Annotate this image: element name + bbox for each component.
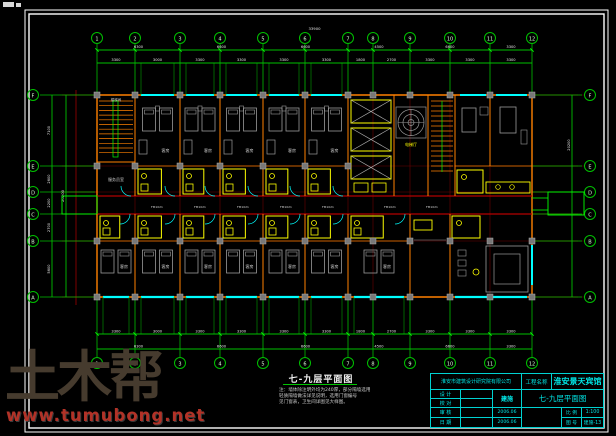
room-label: 客房 xyxy=(383,263,391,269)
pillow xyxy=(271,110,280,114)
axis-number-bottom: 8 xyxy=(371,361,374,367)
room-door-arc xyxy=(290,186,300,196)
tumubong-watermark-logo: 土木帮 xyxy=(5,348,161,406)
pillow xyxy=(331,110,340,114)
room-label: 客房 xyxy=(204,263,212,269)
dim-text-bottom: 3300 xyxy=(111,330,121,334)
column xyxy=(260,163,266,169)
bed xyxy=(500,107,516,133)
sink xyxy=(462,175,467,180)
dim-text-top-major: 6600 xyxy=(301,45,311,49)
dim-text-bottom: 3300 xyxy=(425,330,435,334)
toilet xyxy=(103,228,110,235)
axis-letter-left: C xyxy=(31,212,35,218)
axis-number-top: 11 xyxy=(487,36,493,42)
corridor-door-label: FM1021 xyxy=(426,205,438,209)
axis-letter-right: B xyxy=(588,239,592,245)
axis-number-top: 6 xyxy=(303,36,306,42)
room-door-arc xyxy=(290,214,300,224)
axis-number-top: 12 xyxy=(529,36,535,42)
sink xyxy=(312,221,317,226)
column xyxy=(447,238,453,244)
tv-cabinet xyxy=(267,140,275,154)
sink xyxy=(142,174,147,179)
counter xyxy=(486,182,530,193)
tv-cabinet xyxy=(139,140,147,154)
living-table xyxy=(494,254,520,284)
sink xyxy=(187,221,192,226)
column xyxy=(177,238,183,244)
axis-number-bottom: 3 xyxy=(178,361,181,367)
room-door-arc xyxy=(395,214,405,224)
sink xyxy=(457,221,462,226)
pillow xyxy=(187,252,196,256)
dim-text-top: 2700 xyxy=(387,58,397,62)
column xyxy=(217,92,223,98)
pillow xyxy=(162,110,171,114)
dim-text-overall-top: 33900 xyxy=(308,26,321,31)
column xyxy=(132,163,138,169)
dim-text-top: 3300 xyxy=(506,58,516,62)
toilet xyxy=(141,184,148,191)
nightstand xyxy=(282,106,286,111)
room-label: 客房 xyxy=(288,147,296,153)
stair-label: 楼梯间 xyxy=(111,97,122,102)
sink xyxy=(270,221,275,226)
axis-letter-left: F xyxy=(32,93,35,99)
living-carpet xyxy=(486,246,528,292)
pillow xyxy=(229,252,238,256)
room-door-arc xyxy=(248,214,258,224)
column xyxy=(370,238,376,244)
titleblock-project-name: 淮安景天宾馆 xyxy=(551,373,604,390)
axis-number-bottom: 11 xyxy=(487,361,493,367)
column xyxy=(132,92,138,98)
axis-number-top: 1 xyxy=(95,36,98,42)
corridor-door-label: FM1021 xyxy=(384,205,396,209)
sink xyxy=(142,221,147,226)
corner-artifact xyxy=(16,3,21,7)
column xyxy=(487,294,493,300)
titleblock-no-label: 图 号 xyxy=(561,417,582,428)
axis-letter-right: F xyxy=(589,93,592,99)
pillow xyxy=(314,252,323,256)
column xyxy=(132,238,138,244)
axis-letter-left: E xyxy=(31,164,34,170)
column xyxy=(529,294,535,300)
dim-text-bottom-major: 4500 xyxy=(374,345,384,349)
toilet xyxy=(186,184,193,191)
sink xyxy=(227,221,232,226)
dresser xyxy=(521,130,527,144)
corner-artifact xyxy=(3,2,14,7)
room-door-arc xyxy=(248,186,258,196)
dim-text-top-major: 6600 xyxy=(445,45,455,49)
column xyxy=(260,294,266,300)
sink xyxy=(270,174,275,179)
pillow xyxy=(331,252,340,256)
axis-number-bottom: 5 xyxy=(261,361,264,367)
axis-number-bottom: 12 xyxy=(529,361,535,367)
pillow xyxy=(145,110,154,114)
dim-text-left: 5600 xyxy=(47,264,51,274)
room-door-arc xyxy=(120,214,130,224)
room-label: 客房 xyxy=(288,263,296,269)
dim-text-top: 3300 xyxy=(425,58,435,62)
room-label: 客房 xyxy=(162,147,170,153)
title-block: 淮安市建筑设计研究院有限公司 工程名称 淮安景天宾馆 设 计 校 对 审 核 日… xyxy=(430,373,604,428)
column xyxy=(177,294,183,300)
room-label: 客房 xyxy=(246,263,254,269)
tv-cabinet xyxy=(309,140,317,154)
room-door-arc xyxy=(165,186,175,196)
column xyxy=(529,238,535,244)
dim-text-left: 2700 xyxy=(47,222,51,232)
axis-letter-right: C xyxy=(588,212,592,218)
titleblock-row-label-4: 日 期 xyxy=(430,417,461,428)
sink xyxy=(510,185,515,190)
sink xyxy=(187,174,192,179)
column xyxy=(345,163,351,169)
dim-text-bottom: 3300 xyxy=(322,330,332,334)
pillow xyxy=(366,252,375,256)
axis-number-bottom: 6 xyxy=(303,361,306,367)
dim-text-bottom-major: 6600 xyxy=(445,345,455,349)
column xyxy=(177,163,183,169)
sink xyxy=(104,221,109,226)
pillow xyxy=(204,252,213,256)
lobby-label: 电梯厅 xyxy=(405,141,417,147)
corridor-door-label: FM1021 xyxy=(322,205,334,209)
axis-letter-left: B xyxy=(31,239,35,245)
sink xyxy=(227,174,232,179)
column xyxy=(407,238,413,244)
toilet xyxy=(311,228,318,235)
dim-text-bottom: 3300 xyxy=(506,330,516,334)
dim-text-top: 3300 xyxy=(279,58,289,62)
dim-text-bottom: 3300 xyxy=(465,330,475,334)
room-label: 客房 xyxy=(246,147,254,153)
axis-number-bottom: 4 xyxy=(218,361,221,367)
pillow xyxy=(288,110,297,114)
column xyxy=(370,294,376,300)
pillow xyxy=(204,110,213,114)
pillow xyxy=(120,252,129,256)
room-door-arc xyxy=(205,186,215,196)
suite-bath xyxy=(452,216,480,238)
column xyxy=(345,92,351,98)
column xyxy=(94,238,100,244)
nightstand xyxy=(240,106,244,111)
axis-letter-left: A xyxy=(31,295,35,301)
room-label: 客房 xyxy=(204,147,212,153)
sink xyxy=(496,185,501,190)
sofa xyxy=(458,270,466,276)
pillow xyxy=(145,252,154,256)
room-door-arc xyxy=(165,214,175,224)
dim-text-bottom-major: 6600 xyxy=(217,345,227,349)
titleblock-date-2: 2006.06 xyxy=(492,417,522,428)
column xyxy=(302,294,308,300)
toilet xyxy=(186,228,193,235)
nightstand xyxy=(480,107,488,115)
axis-letter-right: A xyxy=(588,295,592,301)
toilet xyxy=(141,228,148,235)
column xyxy=(487,92,493,98)
axis-number-top: 2 xyxy=(133,36,136,42)
tv-cabinet xyxy=(224,140,232,154)
column xyxy=(447,92,453,98)
room-label: 客房 xyxy=(331,263,339,269)
titleblock-institute: 淮安市建筑设计研究院有限公司 xyxy=(430,373,522,390)
column xyxy=(132,294,138,300)
dim-text-top: 3300 xyxy=(111,58,121,62)
dim-text-bottom: 3300 xyxy=(195,330,205,334)
corridor-door-label: FM1021 xyxy=(194,205,206,209)
column xyxy=(217,163,223,169)
toilet xyxy=(354,228,361,235)
toilet xyxy=(226,184,233,191)
pillow xyxy=(271,252,280,256)
dim-text-top: 3300 xyxy=(237,58,247,62)
dim-text-top: 3300 xyxy=(195,58,205,62)
dim-text-top-major: 6300 xyxy=(134,45,144,49)
note-line-3: 见门窗表，卫生间详图见大样图。 xyxy=(279,400,409,406)
dim-text-top: 3000 xyxy=(153,58,163,62)
tea-table xyxy=(473,269,479,275)
plan-notes: 注：墙体除注明外均为240厚，部分隔墙选用 轻质隔墙做法详见说明，选用门窗编号 … xyxy=(279,388,409,406)
column xyxy=(302,238,308,244)
toilet xyxy=(269,228,276,235)
toilet xyxy=(269,184,276,191)
toilet xyxy=(311,184,318,191)
dim-text-top: 3300 xyxy=(465,58,475,62)
dim-text-top-major: 4500 xyxy=(374,45,384,49)
column xyxy=(260,92,266,98)
pillow xyxy=(229,110,238,114)
dim-text-left: 2600 xyxy=(47,174,51,184)
stair-block xyxy=(97,95,135,162)
pillow xyxy=(162,252,171,256)
axis-number-top: 7 xyxy=(346,36,349,42)
pillow xyxy=(246,252,255,256)
balcony-west xyxy=(62,196,97,214)
column xyxy=(345,294,351,300)
dim-text-top: 1800 xyxy=(356,58,366,62)
balcony-east xyxy=(548,192,584,215)
column xyxy=(487,238,493,244)
corridor-door-label: FM1021 xyxy=(280,205,292,209)
column xyxy=(345,238,351,244)
axis-number-top: 3 xyxy=(178,36,181,42)
room-label: 客房 xyxy=(120,263,128,269)
suite-bath xyxy=(457,170,483,193)
toilet xyxy=(226,228,233,235)
column xyxy=(94,294,100,300)
room-label: 客房 xyxy=(162,263,170,269)
sink xyxy=(355,221,360,226)
dim-text-bottom: 1800 xyxy=(356,330,366,334)
column xyxy=(370,92,376,98)
dim-text-bottom-major: 6600 xyxy=(301,345,311,349)
shaft-box xyxy=(372,183,386,192)
room-door-arc xyxy=(333,214,343,224)
column xyxy=(260,238,266,244)
dim-text-bottom-major: 3300 xyxy=(506,345,516,349)
pillow xyxy=(314,110,323,114)
column xyxy=(407,92,413,98)
bathroom xyxy=(138,169,161,194)
axis-number-top: 10 xyxy=(447,36,453,42)
axis-number-bottom: 9 xyxy=(408,361,411,367)
axis-number-top: 5 xyxy=(261,36,264,42)
service-room-label: 服务员室 xyxy=(108,176,124,182)
axis-letter-right: D xyxy=(588,190,592,196)
titleblock-category: 建施 xyxy=(492,389,522,408)
pillow xyxy=(187,110,196,114)
axis-letter-right: E xyxy=(588,164,591,170)
column xyxy=(407,294,413,300)
column xyxy=(217,238,223,244)
dim-text-top-major: 3300 xyxy=(506,45,516,49)
dim-text-left: 2200 xyxy=(47,198,51,208)
dim-text-bottom: 2700 xyxy=(387,330,397,334)
nightstand xyxy=(156,106,160,111)
sofa xyxy=(458,250,466,256)
axis-number-bottom: 7 xyxy=(346,361,349,367)
titleblock-blank-cell xyxy=(460,417,493,428)
dim-text-left: 7100 xyxy=(47,125,51,135)
column xyxy=(447,294,453,300)
axis-number-top: 4 xyxy=(218,36,221,42)
dim-text-top: 3300 xyxy=(322,58,332,62)
axis-number-top: 9 xyxy=(408,36,411,42)
linen-box xyxy=(414,220,432,230)
room-door-arc xyxy=(333,186,343,196)
nightstand xyxy=(325,106,329,111)
titleblock-project-label: 工程名称 xyxy=(521,373,552,390)
pillow xyxy=(383,252,392,256)
column xyxy=(217,294,223,300)
corridor-door-label: FM1021 xyxy=(151,205,163,209)
corridor-door-label: FM1021 xyxy=(237,205,249,209)
pillow xyxy=(288,252,297,256)
titleblock-blank-cell xyxy=(521,407,562,428)
titleblock-sheet-title: 七-九层平面图 xyxy=(521,389,604,408)
axis-number-bottom: 10 xyxy=(447,361,453,367)
dim-text-bottom: 3300 xyxy=(279,330,289,334)
tumubong-watermark-url: www.tumubong.net xyxy=(6,406,205,425)
cad-drawing-canvas: 1122334455667788991010111112123300330030… xyxy=(0,0,616,436)
column xyxy=(94,92,100,98)
titleblock-no-value: 建施-13 xyxy=(581,417,604,428)
column xyxy=(302,92,308,98)
column xyxy=(94,163,100,169)
dim-text-right: 20200 xyxy=(567,139,571,151)
dim-text-bottom: 3000 xyxy=(153,330,163,334)
shaft-box xyxy=(354,183,368,192)
axis-number-top: 8 xyxy=(371,36,374,42)
axis-letter-left: D xyxy=(31,190,35,196)
pillow xyxy=(246,110,255,114)
tv-cabinet xyxy=(184,140,192,154)
nightstand xyxy=(198,106,202,111)
column xyxy=(529,92,535,98)
room-door-arc xyxy=(205,214,215,224)
pillow xyxy=(103,252,112,256)
plan-title-underline xyxy=(283,384,357,385)
dim-text-bottom: 3300 xyxy=(237,330,247,334)
service-door-arc xyxy=(121,186,131,196)
sink xyxy=(312,174,317,179)
sofa xyxy=(458,260,466,266)
room-label: 客房 xyxy=(331,147,339,153)
column xyxy=(302,163,308,169)
bed xyxy=(462,108,476,132)
column xyxy=(177,92,183,98)
